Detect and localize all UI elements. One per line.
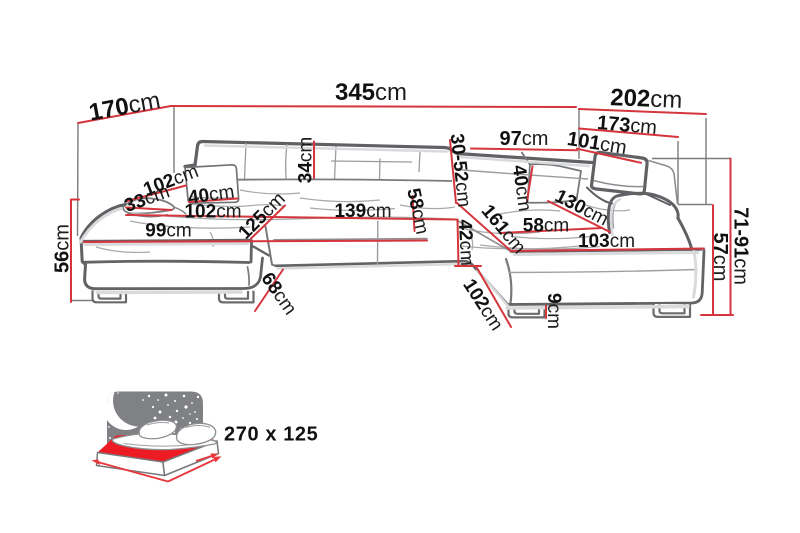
svg-text:345cm: 345cm: [335, 79, 407, 106]
svg-text:56cm: 56cm: [52, 224, 74, 273]
svg-text:99cm: 99cm: [145, 221, 191, 242]
svg-text:9cm: 9cm: [543, 293, 564, 329]
svg-text:97cm: 97cm: [500, 128, 549, 150]
svg-text:202cm: 202cm: [610, 84, 683, 114]
svg-text:139cm: 139cm: [334, 201, 391, 222]
svg-text:102cm: 102cm: [184, 202, 241, 223]
svg-text:34cm: 34cm: [296, 137, 317, 183]
svg-text:58cm: 58cm: [523, 216, 569, 237]
svg-text:270 x 125: 270 x 125: [224, 424, 318, 446]
svg-text:57cm: 57cm: [709, 233, 731, 282]
svg-text:71-91cm: 71-91cm: [730, 207, 752, 285]
svg-text:42cm: 42cm: [454, 219, 477, 267]
svg-text:103cm: 103cm: [578, 231, 635, 252]
